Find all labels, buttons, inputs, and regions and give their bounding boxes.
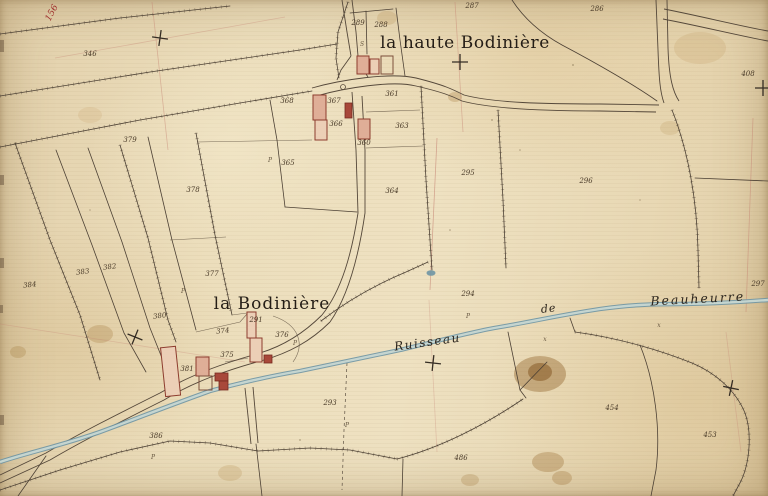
stream-label-ruisseau: Ruisseau — [392, 330, 461, 353]
parcel-number: 295 — [460, 169, 475, 177]
red-sheet-number: 156 — [44, 3, 61, 23]
parcel-number: 408 — [740, 70, 755, 78]
building — [370, 59, 379, 74]
building — [345, 103, 352, 118]
parcel-number: 297 — [750, 280, 765, 288]
parcel-number: 365 — [281, 159, 295, 167]
labels: la haute Bodinière la Bodinière Ruisseau… — [23, 2, 768, 462]
parcel-number: 367 — [327, 97, 341, 105]
parcel-number: 287 — [464, 2, 479, 10]
cadastral-map: la haute Bodinière la Bodinière Ruisseau… — [0, 0, 768, 496]
building — [357, 56, 369, 74]
parcel-number: 380 — [153, 311, 168, 321]
pond — [427, 270, 436, 276]
culture-mark: P — [267, 157, 273, 164]
map-canvas: la haute Bodinière la Bodinière Ruisseau… — [0, 0, 768, 496]
stream-label-beauheurre: Beauheurre — [649, 289, 746, 309]
buildings — [161, 56, 393, 397]
building — [199, 376, 212, 390]
hedge-hatching — [0, 2, 749, 496]
place-label-bodiniere: la Bodinière — [214, 294, 331, 314]
parcel-number: 364 — [385, 187, 398, 195]
culture-mark: P — [150, 454, 156, 461]
survey-cross — [722, 379, 741, 398]
survey-cross — [125, 327, 146, 348]
parcel-number: 293 — [322, 399, 337, 407]
parcel-number: 383 — [76, 267, 91, 277]
culture-mark: S — [360, 41, 364, 48]
parcel-number: 381 — [180, 365, 193, 373]
parcel-number: 363 — [395, 122, 409, 130]
building — [196, 357, 209, 376]
parcel-number: 382 — [103, 262, 118, 272]
parcel-number: 375 — [220, 351, 234, 359]
parcel-number: 384 — [23, 280, 37, 289]
culture-mark: x — [543, 336, 547, 343]
survey-cross — [452, 54, 468, 70]
culture-mark: P — [292, 340, 298, 347]
parcel-number: 377 — [205, 270, 219, 278]
roads — [0, 0, 768, 483]
parcel-number: 386 — [149, 432, 163, 440]
parcel-number: 294 — [460, 290, 474, 298]
parcel-number: 360 — [357, 139, 371, 147]
parcel-number: 376 — [275, 331, 289, 339]
parcel-number: 368 — [280, 97, 294, 105]
parcel-number: 379 — [123, 136, 137, 144]
parcel-number: 346 — [83, 50, 97, 58]
paper-stains — [0, 11, 726, 486]
parcel-number: 454 — [604, 404, 618, 412]
parcel-number: 291 — [248, 316, 262, 324]
culture-mark: P — [465, 313, 471, 320]
parcel-number: 289 — [350, 19, 365, 27]
parcel-number: 486 — [453, 454, 468, 462]
stream-label-de: de — [540, 301, 557, 316]
well — [341, 85, 346, 90]
survey-cross — [755, 80, 768, 96]
building — [264, 355, 272, 363]
parcel-number: 453 — [702, 431, 717, 439]
building — [161, 346, 181, 396]
survey-cross — [424, 354, 442, 372]
parcel-number: 296 — [578, 177, 593, 185]
parcel-number: 286 — [589, 5, 604, 13]
building — [219, 381, 228, 390]
parcel-number: 361 — [385, 90, 398, 98]
parcel-number: 288 — [373, 21, 388, 29]
culture-mark: x — [657, 322, 661, 329]
building — [358, 119, 370, 139]
building — [381, 56, 393, 74]
parcel-number: 378 — [186, 186, 200, 194]
place-label-haute-bodiniere: la haute Bodinière — [380, 33, 550, 53]
building — [250, 338, 262, 362]
parcel-number: 366 — [329, 120, 343, 128]
building — [313, 95, 326, 120]
parcel-number: 374 — [216, 326, 230, 335]
building — [315, 120, 327, 140]
building — [215, 373, 228, 381]
culture-mark: P — [344, 422, 350, 429]
